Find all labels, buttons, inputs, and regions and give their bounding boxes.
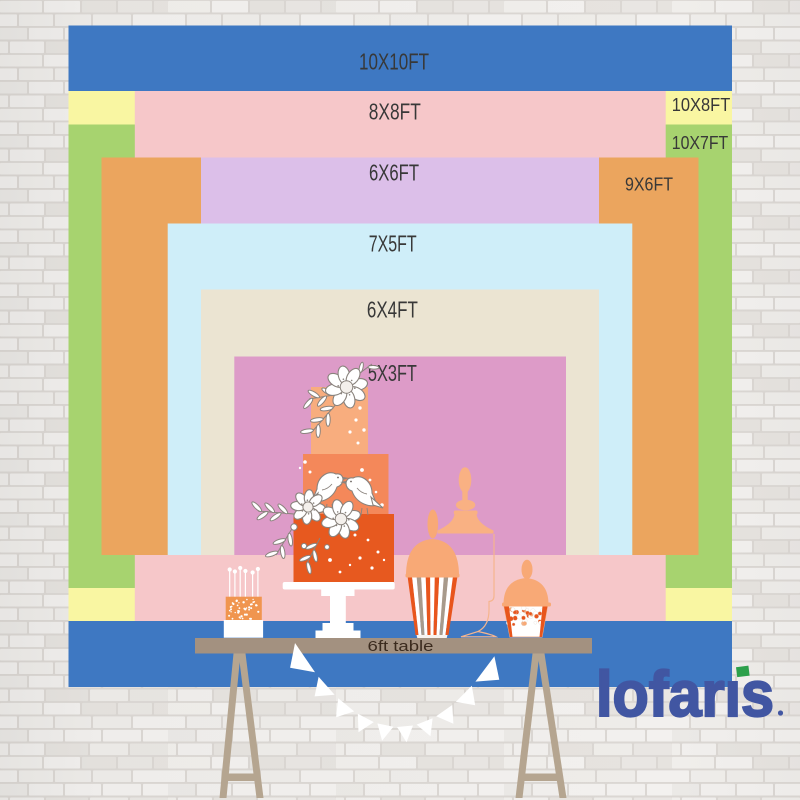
svg-text:7X5FT: 7X5FT [369,231,417,257]
svg-text:10X7FT: 10X7FT [672,133,728,153]
svg-text:6X6FT: 6X6FT [369,160,419,186]
svg-text:9X6FT: 9X6FT [625,175,673,195]
svg-text:6ft table: 6ft table [368,639,434,655]
svg-text:10X10FT: 10X10FT [359,49,429,75]
svg-text:6X4FT: 6X4FT [367,297,418,323]
svg-text:8X8FT: 8X8FT [369,99,421,125]
svg-text:10X8FT: 10X8FT [672,95,731,115]
svg-text:5X3FT: 5X3FT [368,360,417,386]
